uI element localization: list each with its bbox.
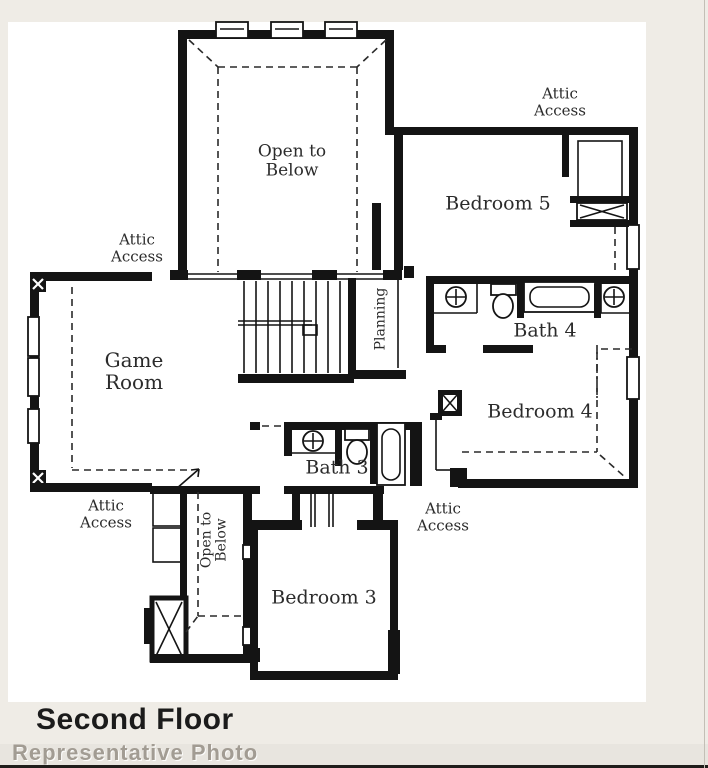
attic-access-label-top-right: Attic Access bbox=[534, 86, 586, 119]
game-room-label: Game Room bbox=[105, 349, 164, 393]
bath3-label: Bath 3 bbox=[305, 458, 368, 479]
planning-label: Planning bbox=[373, 288, 388, 351]
window bbox=[216, 22, 248, 38]
window bbox=[28, 358, 39, 396]
chimney-chase-icon bbox=[144, 598, 186, 660]
bathtub-icon bbox=[377, 423, 405, 485]
bedroom5-label: Bedroom 5 bbox=[445, 194, 550, 215]
window bbox=[28, 409, 39, 443]
window bbox=[325, 22, 357, 38]
window bbox=[627, 357, 639, 399]
floor-plan-page: Attic Access Open to Below Attic Access … bbox=[0, 0, 708, 768]
attic-access-label-top-left: Attic Access bbox=[111, 232, 163, 265]
watermark-bar: Representative Photo bbox=[0, 744, 708, 765]
open-to-below-label-top: Open to Below bbox=[258, 142, 326, 179]
right-edge-line bbox=[704, 0, 705, 768]
window bbox=[627, 225, 639, 269]
corner-post-icon bbox=[30, 276, 46, 292]
bedroom4-label: Bedroom 4 bbox=[487, 402, 592, 423]
attic-hatch-icon bbox=[438, 390, 462, 416]
bathtub-icon bbox=[524, 282, 595, 312]
window bbox=[28, 317, 39, 356]
bath4-label: Bath 4 bbox=[513, 321, 576, 342]
attic-access-label-bottom-left: Attic Access bbox=[80, 498, 132, 531]
window bbox=[271, 22, 303, 38]
open-to-below-label-strip: Open to Below bbox=[200, 512, 231, 568]
attic-access-label-right: Attic Access bbox=[417, 501, 469, 534]
bedroom3-label: Bedroom 3 bbox=[271, 588, 376, 609]
watermark-text: Representative Photo bbox=[12, 740, 258, 766]
linen-shelf-icon bbox=[570, 196, 629, 227]
floor-title: Second Floor bbox=[36, 703, 234, 737]
